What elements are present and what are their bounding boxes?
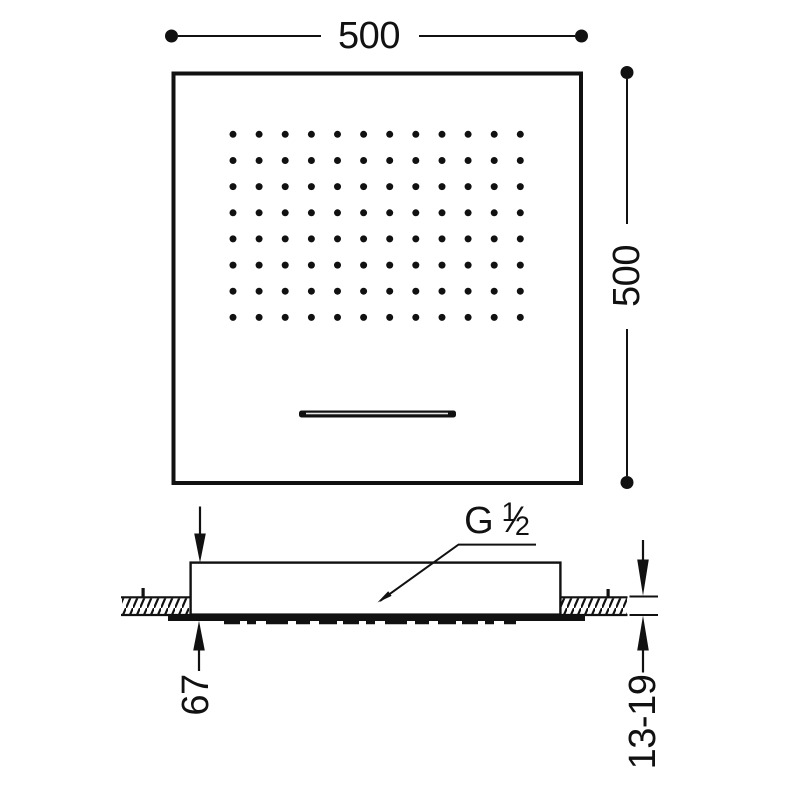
nozzle-dot [517, 183, 524, 190]
nozzle-dot [282, 183, 289, 190]
waterfall-slot [299, 411, 456, 418]
nozzle-dot [386, 288, 393, 295]
nozzle-dot [360, 183, 367, 190]
nozzle-dot [282, 235, 289, 242]
nozzle-dot [465, 262, 472, 269]
nozzle-dot [230, 157, 237, 164]
nozzle-dot [230, 314, 237, 321]
nozzle-dot [308, 288, 315, 295]
nozzle-dot [439, 314, 446, 321]
nozzle-dot [360, 235, 367, 242]
waterfall-slot-highlight [306, 413, 448, 415]
nozzle-dot [491, 288, 498, 295]
nozzle-dot [360, 314, 367, 321]
nozzle-dot [465, 235, 472, 242]
mounting-clip [142, 588, 145, 598]
nozzle-dot [256, 235, 263, 242]
nozzle-dot [412, 209, 419, 216]
nozzle-dot [465, 157, 472, 164]
dim-ceiling-thickness-label: 13-19 [624, 675, 662, 770]
nozzle-dot [465, 288, 472, 295]
nozzle-dot [465, 209, 472, 216]
nozzle-dot [308, 131, 315, 138]
nozzle-dot [230, 209, 237, 216]
nozzle-dot [491, 262, 498, 269]
mounting-clip [607, 589, 610, 598]
nozzle-dot [230, 183, 237, 190]
nozzle-dot [491, 157, 498, 164]
height-dim-arrow-bottom [193, 621, 205, 671]
nozzle-dot [256, 314, 263, 321]
ceiling-left [121, 588, 190, 615]
nozzle-dot [439, 235, 446, 242]
technical-drawing-canvas: 500 500 67 13-19 G 1 ∕ 2 [0, 0, 800, 800]
nozzle-dot [439, 288, 446, 295]
nozzle-dot [439, 262, 446, 269]
nozzle-dot [439, 157, 446, 164]
nozzle-dot [282, 131, 289, 138]
nozzle-dot [230, 262, 237, 269]
technical-drawing [0, 0, 800, 800]
thread-fraction: 1 ∕ 2 [502, 502, 530, 539]
nozzle-dot [386, 262, 393, 269]
nozzle-dot [230, 131, 237, 138]
nozzle-dot [308, 314, 315, 321]
nozzle-dot [334, 262, 341, 269]
nozzle-dot [465, 183, 472, 190]
dim-total-height-label: 67 [177, 674, 215, 715]
nozzle-dot [334, 288, 341, 295]
nozzle-dot [491, 209, 498, 216]
ceiling-right [561, 589, 628, 615]
dim-width-label: 500 [338, 17, 400, 55]
nozzle-dot [491, 131, 498, 138]
dim-height-label: 500 [608, 245, 646, 307]
nozzle-dot [360, 157, 367, 164]
nozzle-dot [334, 209, 341, 216]
thread-size-label: G 1 ∕ 2 [464, 502, 530, 540]
nozzle-dot [360, 131, 367, 138]
nozzle-dot [386, 131, 393, 138]
nozzle-dot [412, 235, 419, 242]
dim-dot [621, 476, 634, 489]
nozzle-dot [282, 157, 289, 164]
thread-fraction-denominator: 2 [515, 513, 530, 540]
nozzle-dot [334, 183, 341, 190]
nozzle-dot [282, 209, 289, 216]
nozzle-dot [308, 183, 315, 190]
nozzle-dot [386, 235, 393, 242]
dim-dot [621, 66, 634, 79]
nozzle-dot [386, 314, 393, 321]
nozzle-dot [308, 262, 315, 269]
nozzle-dot [517, 209, 524, 216]
nozzle-dot [256, 262, 263, 269]
nozzle-dot [517, 262, 524, 269]
nozzle-dot [256, 131, 263, 138]
nozzle-dot [256, 157, 263, 164]
nozzle-dot [465, 131, 472, 138]
dim-dot [165, 30, 178, 43]
section-view [121, 507, 658, 673]
plan-view [174, 74, 582, 484]
nozzle-dot [439, 209, 446, 216]
face-plate [168, 614, 585, 621]
nozzle-dot [517, 314, 524, 321]
nozzle-dot [517, 131, 524, 138]
dim-dot [575, 30, 588, 43]
nozzle-dot [439, 183, 446, 190]
ceiling-thickness-dimension [630, 540, 659, 673]
nozzle-dot [517, 235, 524, 242]
nozzle-dot [517, 157, 524, 164]
nozzle-dot [439, 131, 446, 138]
nozzle-dot [256, 209, 263, 216]
nozzle-dot [465, 314, 472, 321]
nozzle-dot [334, 131, 341, 138]
ceiling-hatch [562, 598, 628, 614]
nozzle-dot [412, 288, 419, 295]
nozzle-dot [282, 314, 289, 321]
nozzle-dot [412, 183, 419, 190]
nozzle-dot [334, 157, 341, 164]
height-dim-arrow-top [194, 507, 206, 563]
nozzle-dot [412, 131, 419, 138]
nozzle-dot [230, 235, 237, 242]
nozzle-dot [308, 157, 315, 164]
nozzle-dot [386, 157, 393, 164]
nozzle-dot [517, 288, 524, 295]
nozzle-dot [334, 314, 341, 321]
nozzle-dot [256, 288, 263, 295]
nozzle-dot [412, 157, 419, 164]
nozzle-dot [360, 288, 367, 295]
nozzle-dot [386, 183, 393, 190]
nozzle-dot [256, 183, 263, 190]
nozzle-dot [491, 183, 498, 190]
nozzle-dot [412, 314, 419, 321]
nozzle-dot [308, 235, 315, 242]
nozzle-dot [491, 235, 498, 242]
nozzle-dot [360, 209, 367, 216]
nozzle-dot [334, 235, 341, 242]
nozzle-dot [230, 288, 237, 295]
thread-prefix: G [464, 502, 494, 540]
nozzle-dot [412, 262, 419, 269]
nozzle-dot [386, 209, 393, 216]
nozzle-dot [360, 262, 367, 269]
nozzle-dot [282, 262, 289, 269]
shower-body-section [191, 563, 561, 615]
nozzle-dot [491, 314, 498, 321]
ceiling-hatch [122, 598, 189, 614]
nozzle-dot [308, 209, 315, 216]
nozzle-dot [282, 288, 289, 295]
